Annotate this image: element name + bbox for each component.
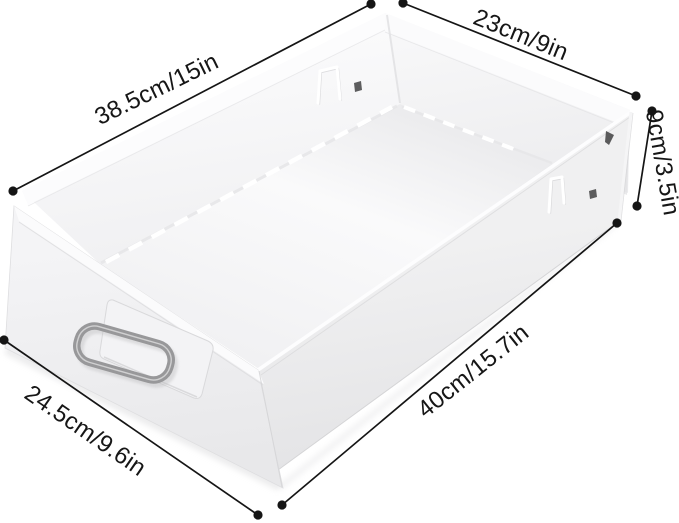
dimension-label-height: 9cm/3.5in: [640, 108, 679, 218]
dimension-dot: [8, 186, 17, 195]
drawer: [5, 13, 633, 488]
drawer-diagram-canvas: 38.5cm/15in 23cm/9in 9cm/3.5in 40cm/15.7…: [0, 0, 679, 523]
dimension-dot: [366, 0, 375, 9]
dimension-dot: [398, 0, 407, 8]
dimension-dot: [253, 510, 262, 519]
product-dimension-diagram: 38.5cm/15in 23cm/9in 9cm/3.5in 40cm/15.7…: [0, 0, 679, 523]
dimension-dot: [632, 201, 641, 210]
dimension-dot: [277, 500, 286, 509]
dimension-dot: [612, 218, 621, 227]
dimension-dot: [631, 91, 640, 100]
